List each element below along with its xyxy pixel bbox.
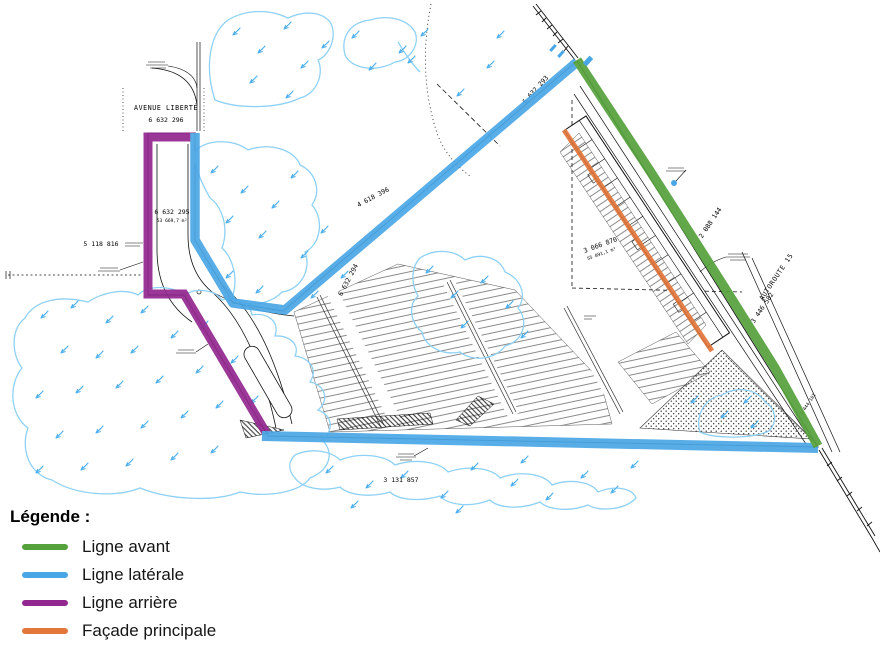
legend-item-rear-line: Ligne arrière [10, 589, 216, 617]
legend: Légende : Ligne avant Ligne latérale Lig… [10, 506, 216, 645]
rear-line-overlay [148, 137, 268, 436]
lot-label-3131857: 3 131 857 [383, 476, 418, 484]
lot-area-6632295: 53 669,7 m² [157, 218, 187, 224]
legend-item-main-facade: Façade principale [10, 617, 216, 645]
main-facade-swatch [22, 628, 68, 634]
rear-line-swatch [22, 600, 68, 606]
legend-item-front-line: Ligne avant [10, 533, 216, 561]
lateral-line-overlay-bottom [262, 436, 818, 448]
legend-title: Légende : [10, 506, 216, 528]
lot-label-6632296: 6 632 296 [148, 116, 183, 124]
site-plan-page: AVENUE LIBERTÉ 6 632 296 6 632 295 53 66… [0, 0, 880, 658]
lateral-line-swatch [22, 572, 68, 578]
main-facade-label: Façade principale [82, 621, 216, 641]
lateral-line-label: Ligne latérale [82, 565, 184, 585]
lot-label-2088144: 2 088 144 [697, 206, 723, 240]
lot-label-4618396: 4 618 396 [356, 185, 391, 209]
highway-label: AUTOROUTE 15 [758, 252, 795, 302]
front-line-swatch [22, 544, 68, 550]
legend-item-lateral-line: Ligne latérale [10, 561, 216, 589]
front-line-label: Ligne avant [82, 537, 170, 557]
lot-label-5118816: 5 118 816 [83, 240, 118, 248]
street-label: AVENUE LIBERTÉ [134, 103, 198, 112]
lot-label-6632295: 6 632 295 [154, 208, 189, 216]
rear-line-label: Ligne arrière [82, 593, 177, 613]
